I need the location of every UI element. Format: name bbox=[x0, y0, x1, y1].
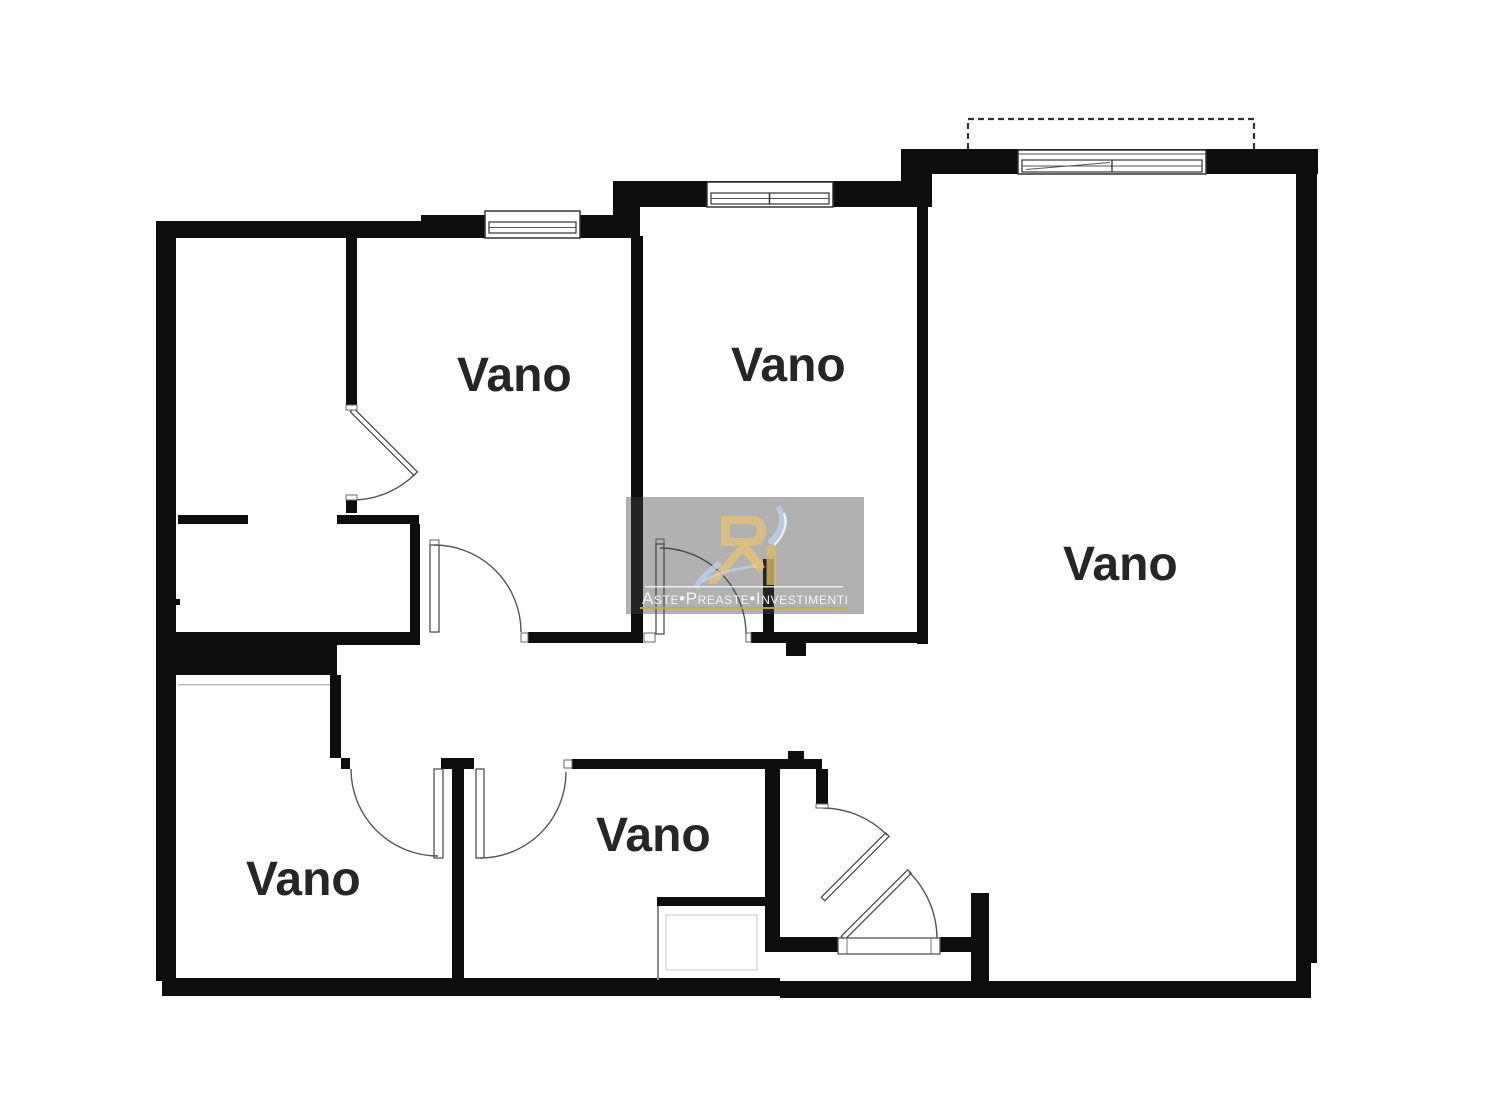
svg-text:Aste•Preaste•Investimenti: Aste•Preaste•Investimenti bbox=[642, 589, 848, 608]
svg-text:Vano: Vano bbox=[246, 853, 361, 906]
svg-text:Vano: Vano bbox=[457, 349, 572, 402]
svg-text:Vano: Vano bbox=[596, 809, 711, 862]
svg-text:Vano: Vano bbox=[731, 339, 846, 392]
svg-text:Vano: Vano bbox=[1063, 538, 1178, 591]
